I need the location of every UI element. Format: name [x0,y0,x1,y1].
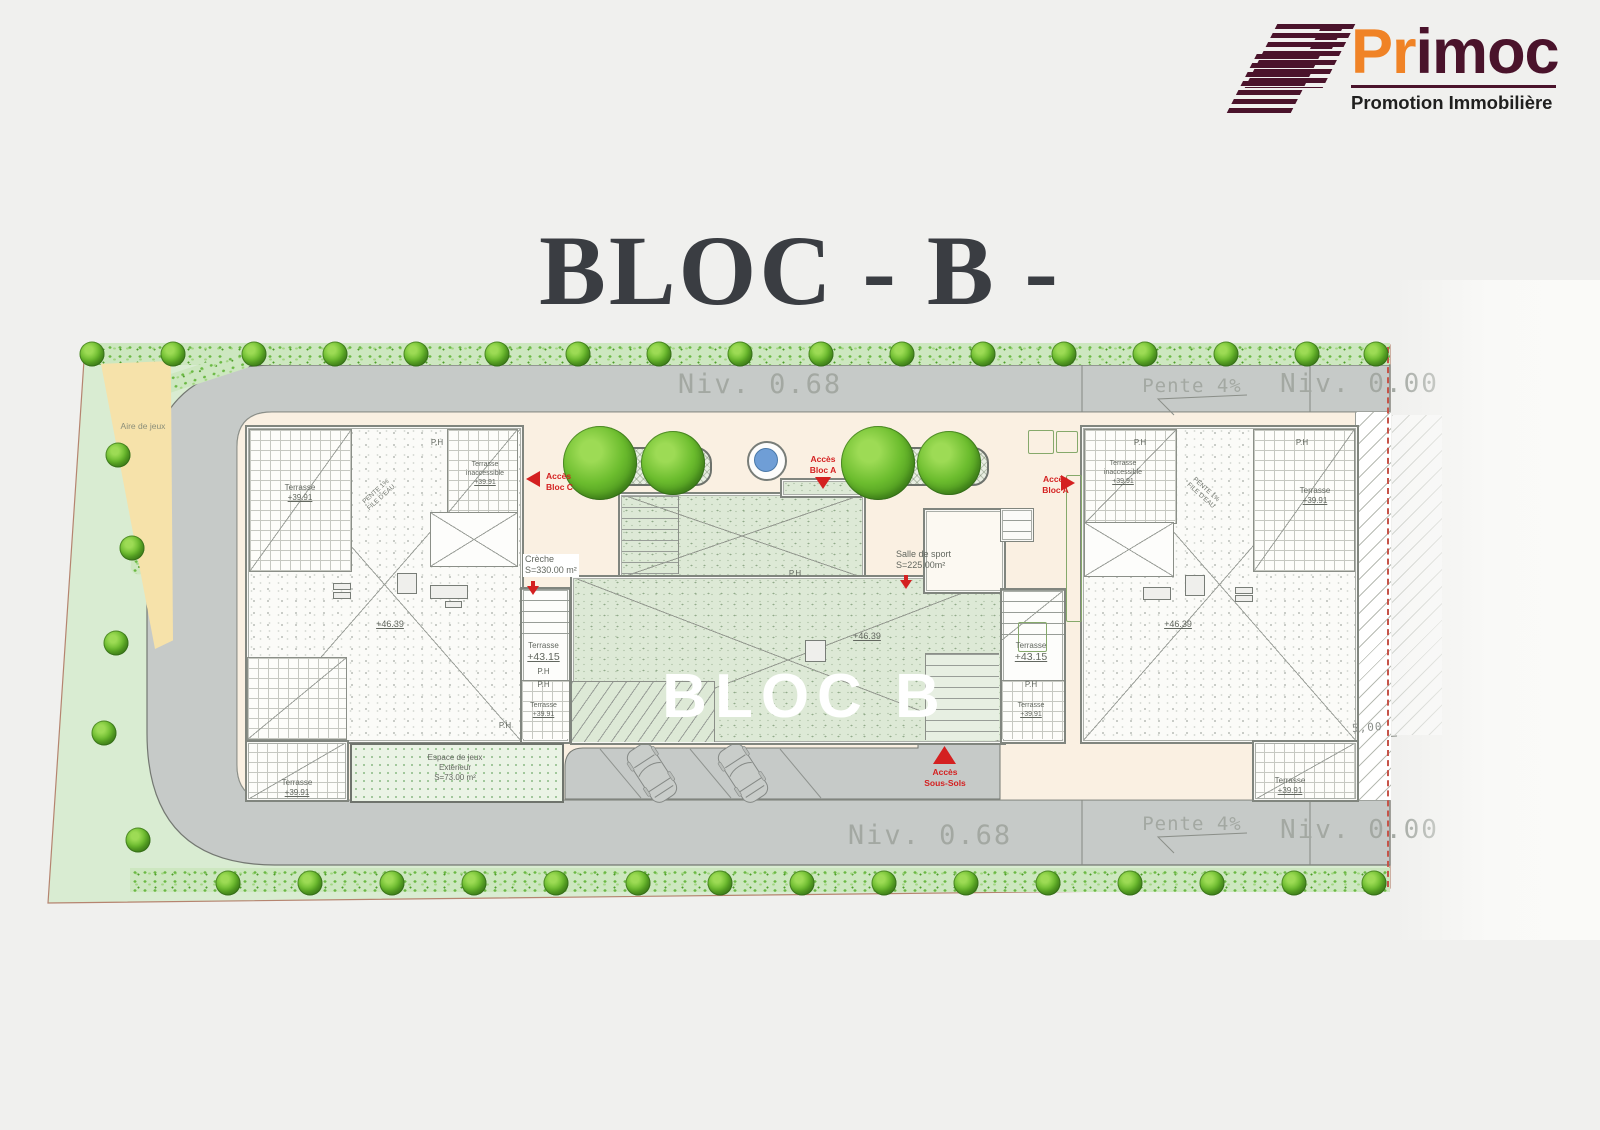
tree-icon [242,342,267,367]
creche-arrow-icon [527,581,539,595]
tree-icon [1118,871,1143,896]
page-title: BLOC - B - [400,213,1200,328]
access-bloc-c-label: AccèsBloc C [546,471,573,493]
tree-icon [1295,342,1320,367]
tree-icon [708,871,733,896]
roof-level-label: +46.39 [360,619,420,630]
ph-label: P.H [1125,438,1155,448]
tree-icon [126,828,151,853]
tree-icon [92,721,117,746]
left-stair-core [520,587,571,744]
sport-hall-label: Salle de sportS=225.00m² [896,549,951,572]
creche-label: CrècheS=330.00 m² [523,554,579,577]
terrace-label: Terrasseinaccessible+39.91 [445,461,525,487]
tree-icon [1282,871,1307,896]
tree-icon [1133,342,1158,367]
tree-icon [890,342,915,367]
setback-dimension: 5,00 [1352,720,1383,735]
sport-hall-arrow-icon [900,575,912,589]
tree-icon [841,426,915,500]
ph-label: P.H [1287,438,1317,448]
fountain-water [754,448,778,472]
roof-vent [805,640,826,662]
tree-icon [647,342,672,367]
roof-vent [445,601,462,608]
roof-skylight [1084,522,1174,577]
outdoor-play-label: Espace de jeuxExtérieurS=73.00 m² [350,753,560,783]
tree-icon [106,443,131,468]
tree-icon [626,871,651,896]
roof-vent [397,573,417,594]
roof-vent [1143,587,1171,600]
roof-level-label: +46.39 [837,631,897,642]
tree-icon [485,342,510,367]
property-line [1387,347,1389,887]
setback-hatch-strip [1355,412,1391,800]
hedge-planter [1056,431,1078,453]
roof-skylight [430,512,518,567]
tree-icon [216,871,241,896]
logo-tagline: Promotion Immobilière [1351,92,1559,114]
roof-vent [333,592,351,599]
access-bloc-a-right-arrow-icon [1061,475,1075,491]
tree-icon [380,871,405,896]
play-area-label: Aire de jeux [108,421,178,432]
tree-icon [1362,871,1387,896]
tree-icon [104,631,129,656]
tree-icon [728,342,753,367]
tree-icon [809,342,834,367]
level-label-top: Niv. 0.68 [660,369,860,400]
tree-icon [462,871,487,896]
plan-edge-fade [1395,280,1600,940]
roof-vent [1235,587,1253,594]
terrace-hatch [247,657,347,740]
tree-icon [790,871,815,896]
brand-suffix: imoc [1416,17,1559,87]
roof-vent [430,585,468,599]
page: { "title": "BLOC - B -", "logo": { "bran… [0,0,1600,1130]
primoc-logo: Primoc Promotion Immobilière [1225,24,1559,118]
tree-icon [917,431,981,495]
roof-vent [333,583,351,590]
tree-icon [298,871,323,896]
terrace-label: Terrasse+39.91 [1255,776,1325,796]
stairs [522,589,569,642]
creche-roof [618,492,866,580]
tree-icon [80,342,105,367]
terrace-label: Terrasseinaccessible+39.91 [1078,460,1168,486]
ph-label: P.H [521,680,566,690]
tree-icon [566,342,591,367]
roof-level-label: +46.39 [1148,619,1208,630]
tree-icon [563,426,637,500]
fountain [747,441,787,481]
stairs [1000,508,1034,542]
ph-label: P.H [780,569,810,579]
ph-label: P.H [422,438,452,448]
roof-vent [1235,595,1253,602]
access-bloc-c-arrow-icon [526,471,540,487]
tree-icon [1052,342,1077,367]
tree-icon [872,871,897,896]
slope-label-bottom: Pente 4% [1132,813,1252,835]
slope-label-top: Pente 4% [1132,375,1252,397]
basement-access-label: Sous-SolsAccèsSous-Sols [910,767,980,789]
tree-icon [120,536,145,561]
primoc-building-icon [1225,24,1341,118]
tree-icon [641,431,705,495]
tree-icon [404,342,429,367]
ph-label: P.H [490,721,520,731]
access-bloc-a-arrow-icon [815,477,831,489]
tree-icon [544,871,569,896]
access-bloc-a-label: AccèsBloc A [798,454,848,476]
tree-icon [1214,342,1239,367]
terrace-label: Terrasse+39.91 [262,778,332,798]
tree-icon [161,342,186,367]
tree-icon [971,342,996,367]
hedge-planter [1066,475,1082,622]
level-label-bottom: Niv. 0.68 [830,820,1030,851]
roof-level-label: +43.15 [519,651,568,664]
tree-icon [323,342,348,367]
terrace-label: Terrasse [1008,641,1054,651]
terrace-label: Terrasse+39.91 [521,702,566,720]
brand-prefix: Pr [1351,17,1416,87]
tree-icon [1200,871,1225,896]
tree-icon [1036,871,1061,896]
stairs [622,496,679,574]
terrace-label: Terrasse [521,641,566,651]
roof-vent [1185,575,1205,596]
bloc-b-title: BLOC B [595,661,1015,732]
tree-icon [954,871,979,896]
tree-icon [1364,342,1389,367]
ph-label: P.H [521,667,566,677]
logo-text: Primoc Promotion Immobilière [1351,24,1559,118]
terrace-label: Terrasse+39.91 [1280,486,1350,506]
hedge-planter [1028,430,1054,454]
terrace-label: Terrasse+39.91 [265,483,335,503]
brand-name: Primoc [1351,24,1559,81]
site-plan: Aire de jeux BLOC B [40,335,1405,915]
